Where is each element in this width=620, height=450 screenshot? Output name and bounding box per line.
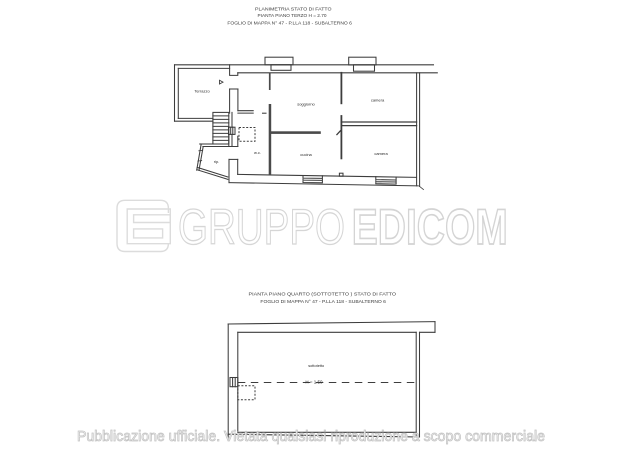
svg-text:GRUPPO: GRUPPO <box>178 199 345 255</box>
svg-text:Pubblicazione ufficiale. Vieta: Pubblicazione ufficiale. Vietata qualsia… <box>77 428 545 445</box>
svg-text:cucina: cucina <box>300 152 312 157</box>
svg-text:rip.: rip. <box>214 159 220 164</box>
svg-text:w.c.: w.c. <box>254 150 261 155</box>
svg-text:Terrazzo: Terrazzo <box>194 89 210 94</box>
svg-text:H = 1.50: H = 1.50 <box>305 380 323 385</box>
svg-text:PIANTA PIANO TERZO H = 2.70: PIANTA PIANO TERZO H = 2.70 <box>258 13 327 19</box>
svg-text:camera: camera <box>371 98 385 103</box>
svg-text:sottotetto: sottotetto <box>308 363 324 368</box>
svg-text:PLANIMETRIA STATO DI FATTO: PLANIMETRIA STATO DI FATTO <box>255 6 332 12</box>
svg-text:soggiorno: soggiorno <box>297 102 315 107</box>
svg-text:FOGLIO DI MAPPA N° 47 - P.LLA: FOGLIO DI MAPPA N° 47 - P.LLA 118 - SUBA… <box>227 20 352 26</box>
svg-text:FOGLIO DI MAPPA N° 47 - P.LLA: FOGLIO DI MAPPA N° 47 - P.LLA 118 - SUBA… <box>260 299 386 305</box>
svg-text:camera: camera <box>374 151 388 156</box>
svg-text:EDICOM: EDICOM <box>352 199 508 255</box>
svg-text:PIANTA PIANO QUARTO (SOTTOTETT: PIANTA PIANO QUARTO (SOTTOTETTO ) STATO … <box>249 292 397 298</box>
